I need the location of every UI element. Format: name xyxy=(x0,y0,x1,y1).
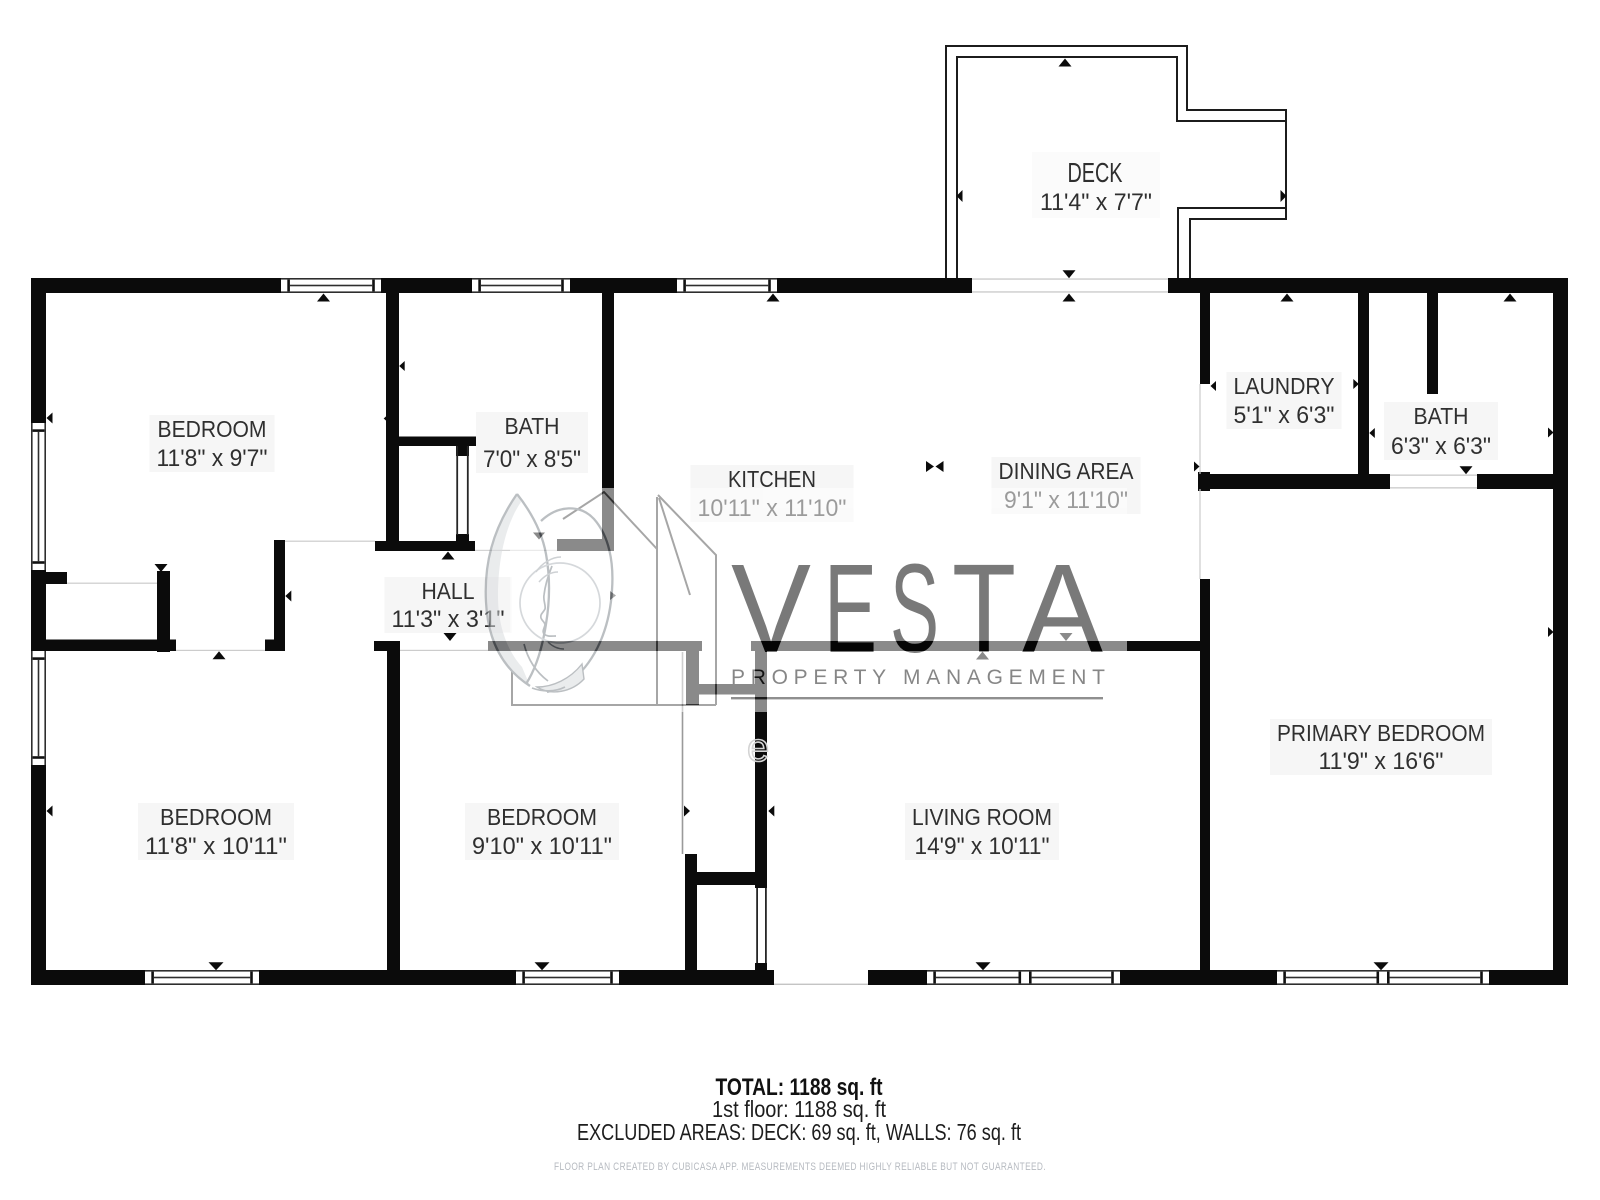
svg-text:DECK: DECK xyxy=(1068,157,1123,188)
svg-text:FLOOR PLAN CREATED BY CUBICASA: FLOOR PLAN CREATED BY CUBICASA APP. MEAS… xyxy=(554,1161,1046,1173)
svg-text:T: T xyxy=(952,538,1016,679)
svg-text:11'8" x 9'7": 11'8" x 9'7" xyxy=(157,445,268,472)
svg-text:11'4" x 7'7": 11'4" x 7'7" xyxy=(1040,189,1152,216)
svg-text:5'1" x 6'3": 5'1" x 6'3" xyxy=(1234,402,1335,429)
svg-text:E: E xyxy=(824,538,877,679)
svg-text:V: V xyxy=(731,538,811,679)
svg-text:e: e xyxy=(747,726,769,770)
svg-text:LIVING ROOM: LIVING ROOM xyxy=(912,804,1052,830)
svg-text:EXCLUDED AREAS: DECK: 69 sq. f: EXCLUDED AREAS: DECK: 69 sq. ft, WALLS: … xyxy=(577,1119,1021,1145)
svg-text:S: S xyxy=(890,538,939,679)
svg-text:BEDROOM: BEDROOM xyxy=(158,416,267,442)
svg-text:A: A xyxy=(1022,538,1103,679)
svg-text:6'3" x 6'3": 6'3" x 6'3" xyxy=(1391,433,1491,460)
svg-text:11'8" x 10'11": 11'8" x 10'11" xyxy=(145,833,287,860)
svg-text:7'0" x 8'5": 7'0" x 8'5" xyxy=(483,446,581,473)
svg-text:DINING AREA: DINING AREA xyxy=(999,458,1135,484)
svg-text:BEDROOM: BEDROOM xyxy=(160,804,272,830)
svg-text:HALL: HALL xyxy=(422,578,475,604)
svg-text:LAUNDRY: LAUNDRY xyxy=(1234,373,1335,399)
svg-text:14'9" x 10'11": 14'9" x 10'11" xyxy=(915,833,1050,860)
svg-text:11'9" x 16'6": 11'9" x 16'6" xyxy=(1319,748,1444,775)
svg-text:BATH: BATH xyxy=(1414,403,1469,429)
svg-text:BEDROOM: BEDROOM xyxy=(487,804,597,830)
svg-text:BATH: BATH xyxy=(505,413,560,439)
svg-text:PRIMARY BEDROOM: PRIMARY BEDROOM xyxy=(1277,720,1485,746)
svg-text:9'10" x 10'11": 9'10" x 10'11" xyxy=(472,833,612,860)
